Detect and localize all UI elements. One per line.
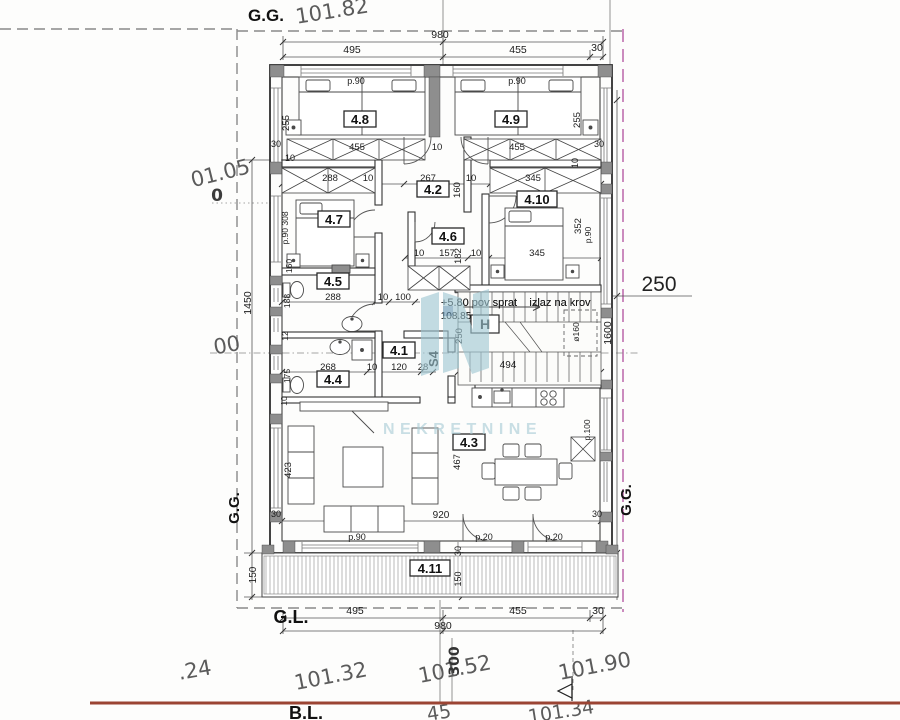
window-left-living (271, 428, 281, 508)
room-label-text: 4.6 (439, 229, 457, 244)
room-label-4-1: 4.1 (383, 342, 415, 358)
watermark-text: NEKRETNINE (383, 421, 542, 438)
room-label-4-7: 4.7 (318, 211, 350, 227)
dim-10-b: 10 (466, 173, 477, 184)
dim-12-left: 12 (280, 331, 290, 341)
dim-10-46r: 10 (471, 248, 482, 259)
dim-175-left: 175 (282, 369, 292, 383)
dim-p20-door2: p.20 (545, 532, 563, 542)
watermark-logo-accent (443, 306, 453, 316)
window-right-kitchen (601, 398, 611, 502)
terrace-pier-right (606, 545, 618, 554)
dim-494-stair: 494 (500, 360, 517, 371)
dim-100-45: 100 (395, 292, 411, 303)
sofa-bottom (324, 506, 404, 532)
closet-410 (490, 168, 601, 193)
room-label-text: 4.8 (351, 112, 369, 127)
dim-top-495: 495 (343, 44, 361, 56)
room-label-text: 4.4 (324, 372, 343, 387)
dim-bot-30: 30 (592, 605, 604, 617)
label-gg-right: G.G. (618, 484, 635, 516)
dim-423-living: 423 (283, 462, 294, 478)
dim-p90-room410: p.90 (583, 226, 593, 243)
room-label-text: 4.5 (324, 274, 342, 289)
dim-10-a: 10 (363, 173, 374, 184)
dim-30-topleft: 30 (271, 139, 281, 149)
dim-left-1450: 1450 (242, 291, 254, 315)
sofa-right (412, 428, 438, 504)
watermark-logo-icon (421, 289, 489, 376)
window-right-49 (601, 88, 611, 164)
closet-49 (464, 139, 601, 160)
dim-455-closet-left: 455 (349, 142, 365, 153)
room-label-text: 4.2 (424, 182, 442, 197)
room-label-text: 4.9 (502, 112, 520, 127)
room-label-4-8: 4.8 (344, 111, 376, 127)
kitchen-counter (472, 388, 564, 407)
closet-46 (408, 266, 470, 290)
dim-bot-455: 455 (509, 605, 527, 617)
dim-o160-shaft: ø160 (571, 322, 581, 342)
dim-10-46l: 10 (414, 248, 425, 259)
label-gg-left: G.G. (226, 492, 243, 524)
dim-top-980: 980 (431, 29, 449, 41)
room-label-4-11: 4.11 (410, 560, 450, 576)
dim-30-bottomleft: 30 (271, 509, 281, 519)
dim-bot-300: 300 (447, 646, 463, 675)
dim-p90-room48: p.90 (347, 76, 365, 86)
dim-10-right-wall: 10 (570, 158, 580, 168)
floor-plan-page: 4.14.24.34.44.54.64.74.84.94.104.11 G.G.… (0, 0, 900, 720)
shower-44 (352, 340, 372, 360)
window-bottom-living (302, 542, 418, 552)
dim-160-corridor: 160 (452, 182, 463, 198)
dining-table (482, 444, 572, 500)
dim-right-1600: 1600 (602, 321, 614, 345)
dim-top-455: 455 (509, 44, 527, 56)
room-label-text: 4.10 (524, 192, 549, 207)
dim-p90-308: p.90 308 (280, 211, 290, 244)
dim-182-room46: 182 (453, 248, 464, 264)
dim-920-living: 920 (433, 510, 450, 521)
room-label-4-10: 4.10 (517, 191, 557, 207)
room-label-4-5: 4.5 (317, 273, 349, 289)
dim-30-topright: 30 (594, 139, 604, 149)
door-bottom-2 (528, 542, 582, 552)
dim-345-closet: 345 (525, 173, 541, 184)
dim-top-30: 30 (591, 42, 603, 54)
window-left-48 (271, 88, 281, 164)
dim-10-center-wall: 10 (432, 142, 443, 153)
label-gg-top: G.G. (248, 6, 284, 25)
dim-p100-kitchen: p.100 (582, 419, 592, 441)
dim-268-room44: 268 (320, 362, 336, 373)
washbasin-44 (330, 340, 350, 355)
dim-467-dining: 467 (452, 454, 463, 470)
dim-150-terrace: 150 (453, 571, 463, 586)
dim-left-150: 150 (248, 566, 259, 583)
dim-120-room41: 120 (391, 362, 407, 373)
dim-288-closet: 288 (322, 173, 338, 184)
elev-bot-24: .24 (176, 655, 213, 684)
room-label-text: 4.1 (390, 343, 408, 358)
elev-bl-101-34: 101.34 (527, 696, 596, 720)
room-label-text: 4.7 (325, 212, 343, 227)
washbasin-45 (342, 317, 362, 332)
label-gl: G.L. (274, 607, 309, 627)
dim-10-41a: 10 (367, 362, 378, 373)
ground-level-line (90, 676, 900, 703)
window-right-410 (601, 198, 611, 304)
dim-255-right: 255 (572, 112, 583, 128)
dim-bot-495: 495 (346, 605, 364, 617)
elev-left-00: 00 (212, 331, 242, 359)
dim-bot-980: 980 (434, 620, 452, 632)
coffee-table (343, 447, 383, 487)
window-top-48 (301, 66, 411, 76)
dim-188-left: 188 (282, 294, 292, 308)
dim-10-left: 10 (279, 396, 289, 406)
elev-top-101-82: 101.82 (294, 0, 370, 29)
dim-255-left: 255 (281, 115, 292, 131)
room-label-text: 4.11 (418, 561, 443, 576)
dim-10-45: 10 (378, 292, 389, 303)
window-left-bath (271, 288, 281, 370)
elev-bot-101-90: 101.90 (556, 647, 633, 685)
elev-bot-101-32: 101.32 (292, 657, 369, 695)
dim-455-closet-right: 455 (509, 142, 525, 153)
dim-345-room410: 345 (529, 248, 545, 259)
room-label-4-9: 4.9 (495, 111, 527, 127)
door-bottom-1 (458, 542, 512, 552)
dim-p90-room49: p.90 (508, 76, 526, 86)
dim-right-250: 250 (641, 273, 676, 296)
dim-p90-living: p.90 (348, 532, 366, 542)
dim-288-room45: 288 (325, 292, 341, 303)
dim-30-terrace: 30 (453, 546, 463, 556)
label-bl: B.L. (289, 703, 323, 720)
dim-160-room47: 160 (284, 259, 294, 273)
window-top-49 (453, 66, 563, 76)
dim-p20-door1: p.20 (475, 532, 493, 542)
elev-left-0: 0 (211, 186, 223, 206)
terrace-pier-left (262, 545, 274, 554)
dim-267-corridor: 267 (420, 173, 436, 184)
room-label-4-6: 4.6 (432, 228, 464, 244)
dim-10-topleft: 10 (285, 153, 295, 163)
dim-30-bottomright: 30 (592, 509, 602, 519)
room-label-4-4: 4.4 (317, 371, 349, 387)
text-stair-exit: izlaz na krov (529, 297, 591, 309)
